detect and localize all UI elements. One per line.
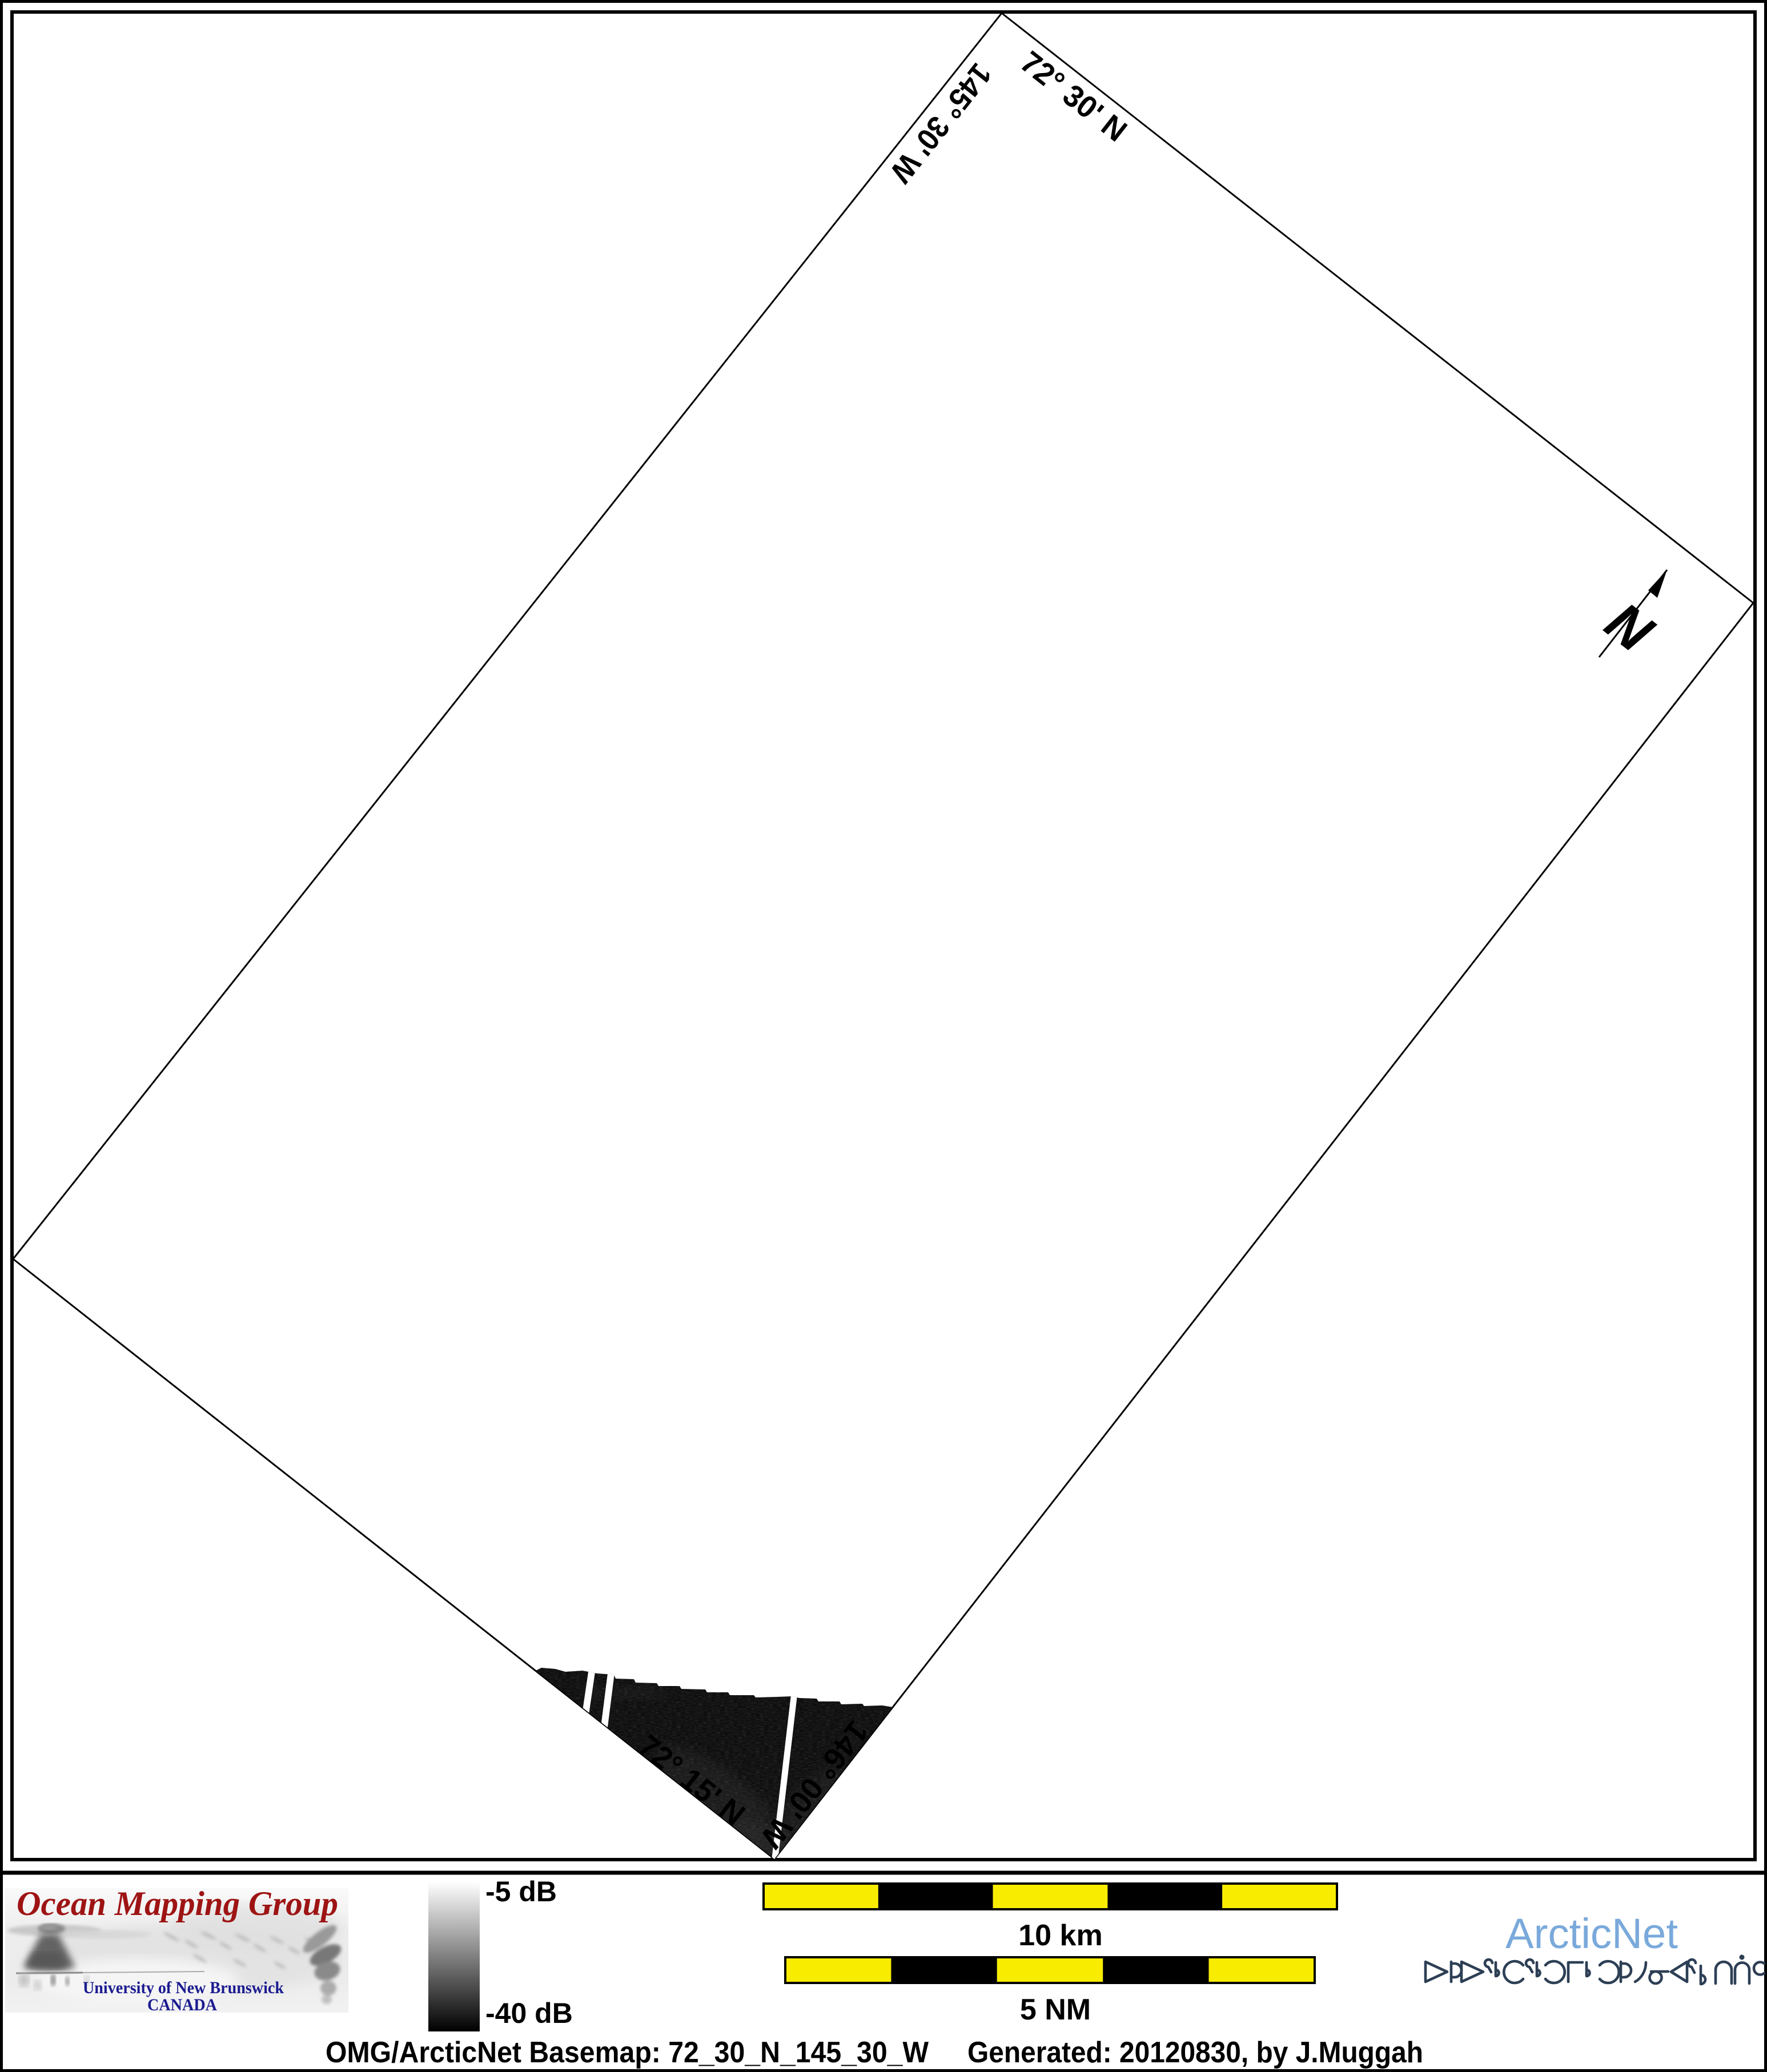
svg-text:-40 dB: -40 dB bbox=[485, 1997, 573, 2029]
svg-text:5 NM: 5 NM bbox=[1020, 1993, 1091, 2026]
svg-text:University of New Brunswick: University of New Brunswick bbox=[83, 1978, 284, 1997]
svg-text:ArcticNet: ArcticNet bbox=[1505, 1910, 1678, 1957]
svg-text:Ocean Mapping Group: Ocean Mapping Group bbox=[17, 1885, 338, 1922]
svg-text:-5 dB: -5 dB bbox=[485, 1876, 557, 1908]
svg-text:Generated: 20120830, by J.Mugg: Generated: 20120830, by J.Muggah bbox=[967, 2036, 1423, 2069]
svg-text:OMG/ArcticNet Basemap: 72_30_N: OMG/ArcticNet Basemap: 72_30_N_145_30_W bbox=[326, 2036, 929, 2069]
svg-text:10 km: 10 km bbox=[1018, 1919, 1102, 1952]
svg-text:CANADA: CANADA bbox=[147, 1995, 217, 2014]
